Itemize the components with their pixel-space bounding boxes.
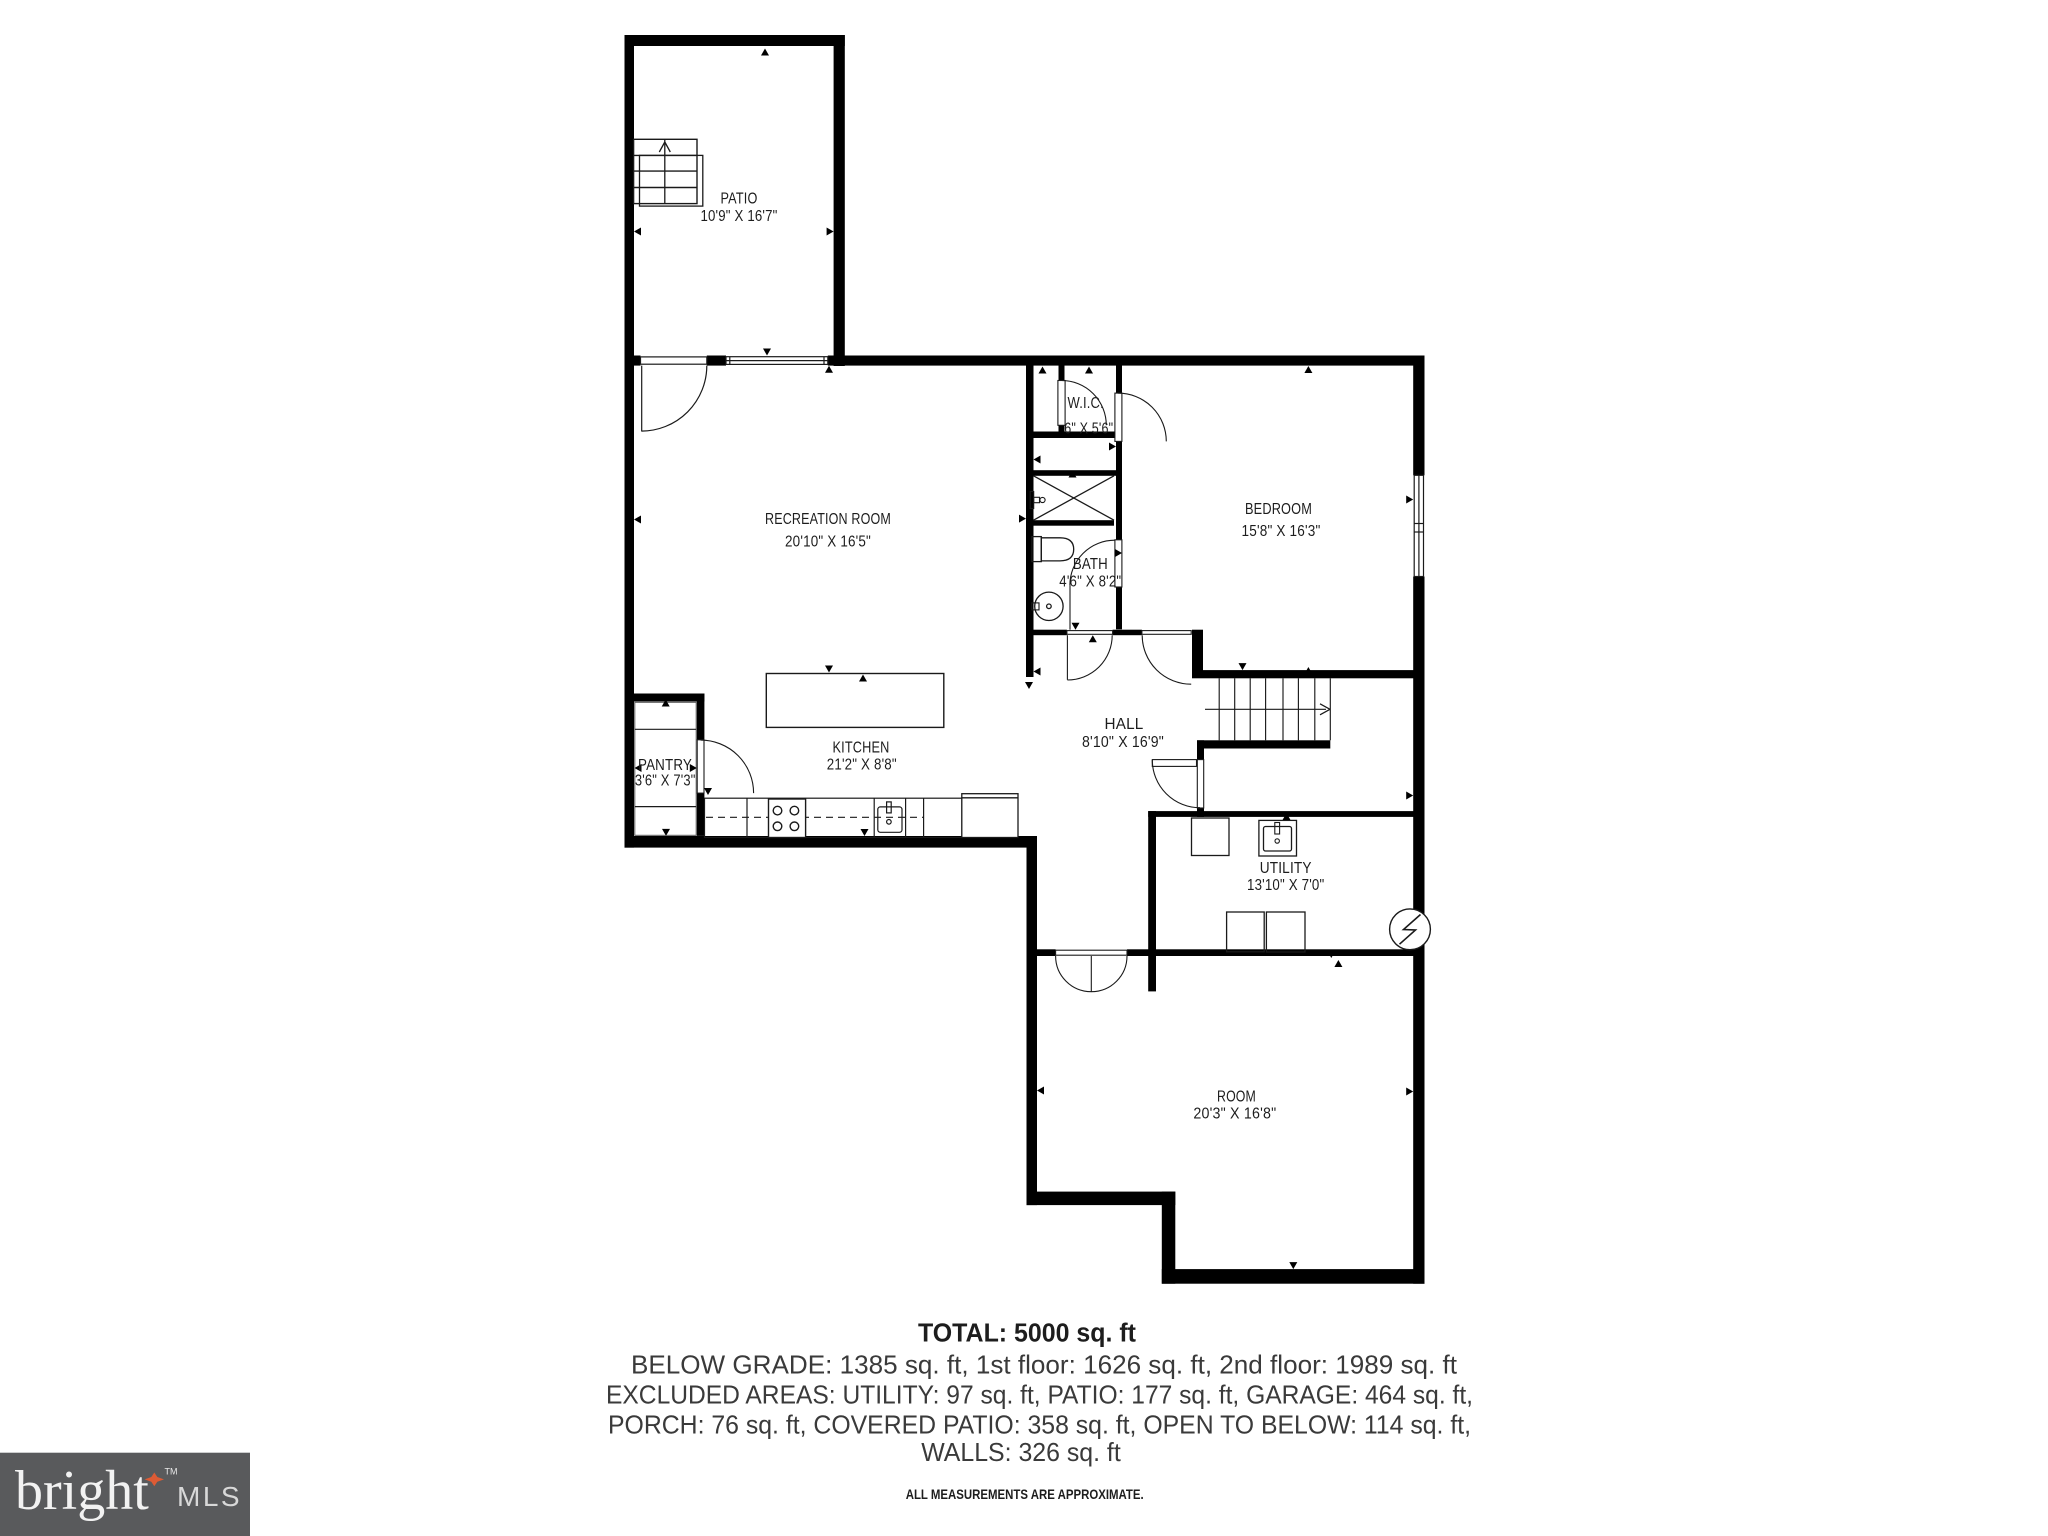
svg-text:ROOM: ROOM	[1217, 1089, 1256, 1106]
svg-text:10'9" X 16'7": 10'9" X 16'7"	[701, 208, 778, 225]
svg-text:EXCLUDED AREAS: UTILITY: 97 sq: EXCLUDED AREAS: UTILITY: 97 sq. ft, PATI…	[606, 1380, 1473, 1410]
svg-text:TM: TM	[165, 1467, 178, 1477]
svg-text:3'6" X 7'3": 3'6" X 7'3"	[635, 772, 696, 789]
svg-text:20'10" X 16'5": 20'10" X 16'5"	[785, 534, 871, 551]
svg-text:8'10" X 16'9": 8'10" X 16'9"	[1082, 734, 1164, 751]
svg-text:6" X 5'6": 6" X 5'6"	[1064, 421, 1113, 438]
svg-text:UTILITY: UTILITY	[1260, 860, 1312, 877]
svg-text:PANTRY: PANTRY	[638, 757, 692, 774]
svg-text:4'6" X 8'2": 4'6" X 8'2"	[1059, 573, 1121, 590]
svg-text:W.I.C.: W.I.C.	[1068, 395, 1104, 412]
svg-text:21'2" X 8'8": 21'2" X 8'8"	[827, 757, 897, 774]
svg-text:RECREATION ROOM: RECREATION ROOM	[765, 511, 891, 528]
svg-text:ALL MEASUREMENTS ARE APPROXIMA: ALL MEASUREMENTS ARE APPROXIMATE.	[906, 1486, 1144, 1502]
svg-text:bright: bright	[15, 1460, 149, 1522]
svg-text:15'8" X 16'3": 15'8" X 16'3"	[1242, 523, 1321, 540]
svg-text:13'10" X 7'0": 13'10" X 7'0"	[1247, 877, 1324, 894]
svg-text:PORCH: 76 sq. ft, COVERED PATI: PORCH: 76 sq. ft, COVERED PATIO: 358 sq.…	[608, 1410, 1471, 1440]
svg-text:TOTAL: 5000 sq. ft: TOTAL: 5000 sq. ft	[918, 1320, 1136, 1348]
svg-text:MLS: MLS	[177, 1481, 242, 1512]
svg-text:WALLS: 326 sq. ft: WALLS: 326 sq. ft	[921, 1437, 1121, 1467]
svg-text:20'3" X 16'8": 20'3" X 16'8"	[1193, 1105, 1276, 1122]
svg-text:PATIO: PATIO	[721, 191, 758, 208]
svg-text:BATH: BATH	[1073, 556, 1108, 573]
svg-text:BELOW GRADE: 1385 sq. ft, 1st: BELOW GRADE: 1385 sq. ft, 1st floor: 162…	[631, 1350, 1458, 1380]
svg-text:BEDROOM: BEDROOM	[1245, 501, 1312, 518]
svg-text:HALL: HALL	[1105, 716, 1144, 733]
svg-text:KITCHEN: KITCHEN	[833, 740, 890, 757]
